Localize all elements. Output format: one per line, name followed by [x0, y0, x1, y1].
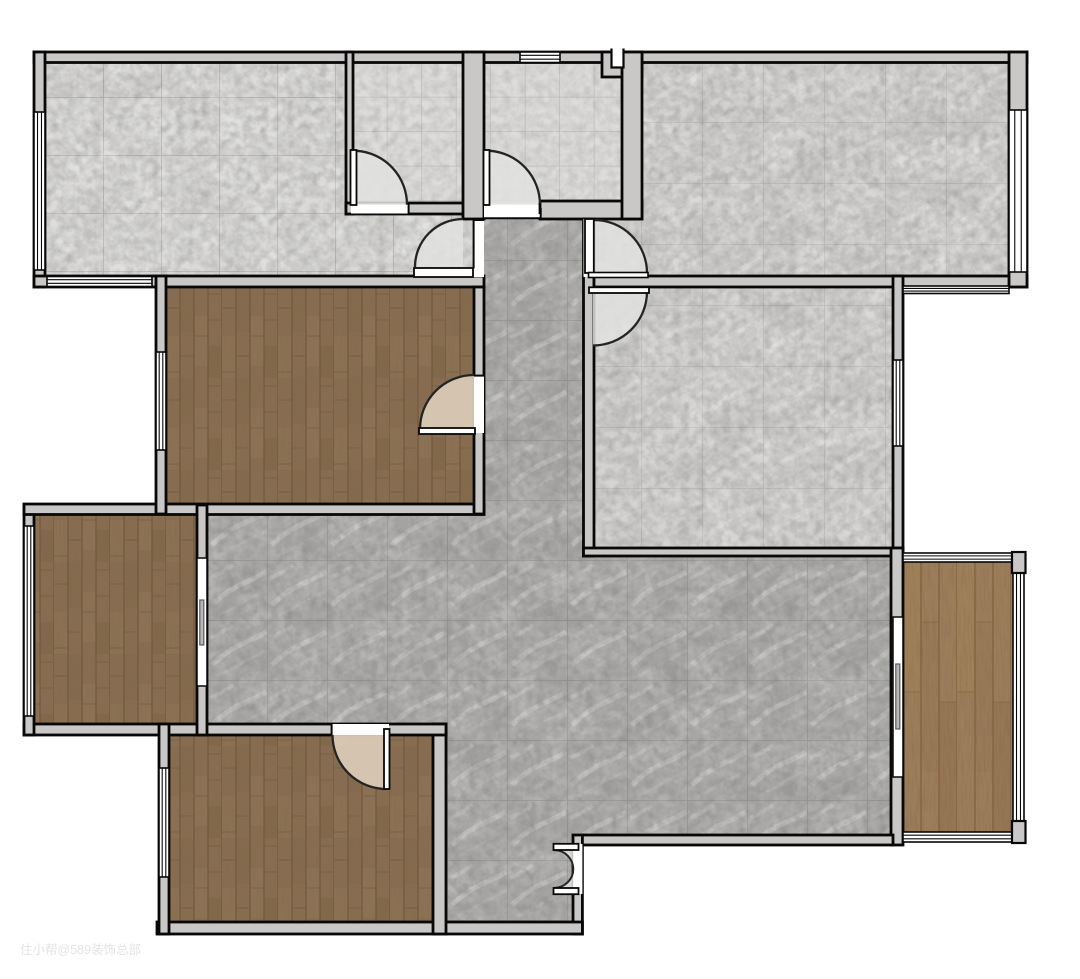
svg-text:住小帮@589装饰总部: 住小帮@589装饰总部	[20, 942, 141, 957]
